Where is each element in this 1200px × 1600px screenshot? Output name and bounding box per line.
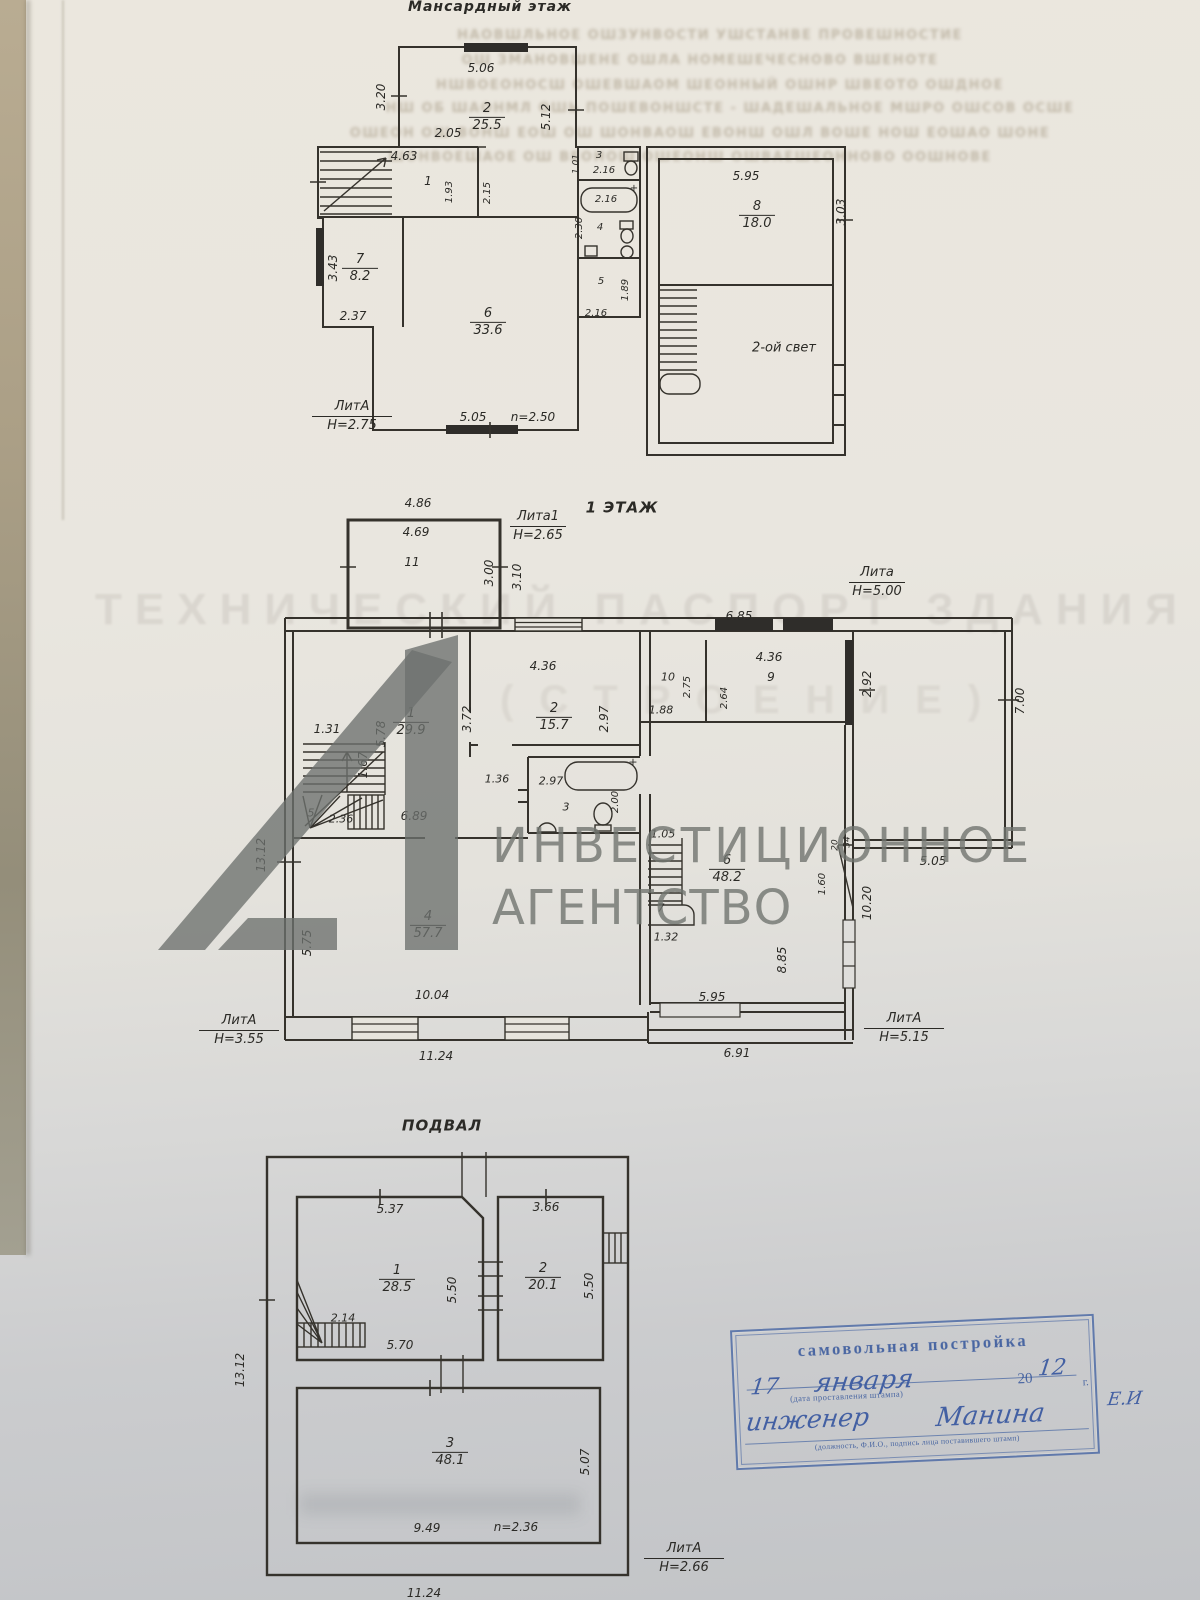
floor1-walls [285, 618, 1012, 1043]
dim-label: 4.36 [756, 651, 783, 663]
room-label: 128.5 [379, 1264, 415, 1294]
dim-label: 2.97 [598, 706, 610, 733]
dim-label: 4.86 [405, 497, 432, 509]
attic-walls [318, 47, 845, 455]
dim-label: 5.75 [301, 930, 313, 957]
stamp-year-suffix: г. [1082, 1376, 1089, 1388]
room-label: 225.5 [469, 102, 505, 132]
dim-label: 4.63 [391, 150, 418, 162]
dim-label: 5.05 [460, 411, 487, 423]
dim-label: 4.69 [403, 526, 430, 538]
dim-label: 20 [832, 839, 841, 850]
dim-label: 7 [658, 903, 665, 914]
room-label: 220.1 [525, 1262, 561, 1292]
dim-label: 9 [767, 671, 775, 683]
plan-title-basement: ПОДВАЛ [402, 1119, 482, 1134]
room-label: 648.2 [709, 854, 745, 884]
floor1-fixtures [538, 762, 637, 832]
dim-label: 3.00 [483, 560, 495, 587]
dim-label: 5.12 [540, 104, 552, 131]
dim-label: 5 [308, 808, 315, 819]
dim-label: 2.00 [611, 791, 621, 813]
unauthorized-construction-stamp: самовольная постройка 17 января 20 12 г.… [730, 1314, 1100, 1470]
dim-label: 5.37 [377, 1203, 404, 1215]
dim-label: 2-ой свет [752, 342, 816, 355]
basement-details [297, 1152, 628, 1393]
dim-label: + [628, 757, 637, 768]
room-label: 633.6 [470, 307, 506, 337]
dim-label: 4 [597, 223, 603, 233]
dim-label: 10.20 [861, 886, 873, 920]
liter-height-label: ЛитАН=2.75 [312, 400, 392, 434]
dim-label: 5.50 [446, 1277, 458, 1304]
dim-label: 1.05 [651, 829, 676, 840]
dim-label: 8.85 [776, 947, 788, 974]
liter-height-label: ЛитАН=5.15 [864, 1012, 944, 1046]
stamp-handwritten-initials: Е.И [1106, 1388, 1143, 1411]
room-label: 129.9 [393, 707, 429, 737]
dim-label: 3.66 [533, 1201, 560, 1213]
scanned-document-page: { "colors": {"ink":"#35322c","stamp_blue… [0, 0, 1200, 1600]
stamp-year-prefix: 20 [1017, 1371, 1033, 1389]
plan-title-floor1: 1 ЭТАЖ [586, 501, 659, 516]
liter-height-label: ЛитАН=3.55 [199, 1014, 279, 1048]
dim-label: 34 [844, 836, 853, 847]
dim-label: 2.15 [483, 182, 493, 204]
dim-label: 3.20 [375, 84, 387, 111]
basement-walls [267, 1157, 628, 1575]
dim-label: 3.03 [835, 199, 847, 226]
stamp-handwritten-name: Манина [934, 1398, 1046, 1433]
dim-label: 1.01 [573, 154, 582, 174]
dim-label: 1.93 [445, 181, 455, 203]
dim-label: 2.92 [861, 671, 873, 698]
dim-label: 1.36 [485, 774, 510, 785]
dim-label: 5.78 [375, 721, 387, 748]
dim-label: 5.05 [920, 855, 947, 867]
room-label: 78.2 [342, 253, 378, 283]
dim-label: 3 [596, 151, 602, 161]
dim-label: 6.91 [724, 1047, 751, 1059]
dim-label: 5.95 [699, 991, 726, 1003]
plan-title-attic: Мансардный этаж [408, 0, 572, 14]
dim-label: 2.64 [720, 687, 730, 709]
dim-label: 4.36 [530, 660, 557, 672]
dim-label: 11.24 [419, 1050, 453, 1062]
dim-label: + [630, 184, 638, 194]
dim-label: 10 [661, 672, 675, 683]
floor1-windows [352, 618, 855, 1040]
dim-label: 5.06 [468, 62, 495, 74]
dim-label: 13.12 [255, 838, 267, 872]
liter-height-label: ЛитаН=5.00 [849, 566, 905, 600]
dim-label: 2.75 [683, 676, 693, 698]
dim-label: 10.04 [415, 989, 449, 1001]
dim-label: 5.50 [583, 1273, 595, 1300]
dim-label: 1.67 [357, 752, 369, 779]
room-label: 818.0 [739, 200, 775, 230]
room-label: 348.1 [432, 1437, 468, 1467]
dim-label: 2.05 [435, 127, 462, 139]
liter-height-label: Лита1Н=2.65 [510, 510, 566, 544]
dim-label: 11.24 [407, 1587, 441, 1599]
liter-height-label: ЛитАН=2.66 [644, 1542, 724, 1576]
room-label: 457.7 [410, 910, 446, 940]
dim-label: 6.85 [726, 610, 753, 622]
dim-label: 2.97 [539, 776, 564, 787]
dim-label: 1.89 [621, 279, 631, 301]
dim-label: n=2.50 [511, 411, 555, 423]
dim-label: 1.88 [649, 705, 674, 716]
dim-label: 9.49 [414, 1522, 441, 1534]
stamp-handwritten-role: инженер [744, 1402, 871, 1437]
dim-label: 13.12 [234, 1353, 246, 1387]
dim-label: 7.00 [1014, 688, 1026, 715]
dim-label: 3.10 [511, 564, 523, 591]
dim-label: 2.37 [340, 310, 367, 322]
dim-label: 11 [404, 556, 419, 568]
dim-label: 5.70 [387, 1339, 414, 1351]
dim-label: 2.30 [575, 217, 585, 239]
dim-label: 5 [598, 277, 604, 287]
dim-label: 6.89 [401, 810, 428, 822]
dim-label: n=2.36 [494, 1521, 538, 1533]
dim-label: 2.16 [585, 309, 607, 319]
room-label: 215.7 [536, 702, 572, 732]
dim-label: 2.36 [329, 814, 354, 825]
dim-label: 3.72 [461, 706, 473, 733]
dim-label: 3 [563, 802, 570, 813]
dim-label: 1.32 [654, 932, 679, 943]
dim-label: 1.31 [314, 723, 341, 735]
dim-label: 1.60 [818, 873, 828, 895]
dim-label: 2.16 [593, 166, 615, 176]
dim-label: 5.07 [579, 1449, 591, 1476]
dim-label: 2.16 [595, 195, 617, 205]
dim-label: 2.14 [331, 1313, 356, 1324]
dim-label: 3.43 [327, 255, 339, 282]
stamp-handwritten-year: 12 [1036, 1355, 1067, 1381]
dim-label: 5.95 [733, 170, 760, 182]
dim-label: 1 [424, 175, 432, 187]
